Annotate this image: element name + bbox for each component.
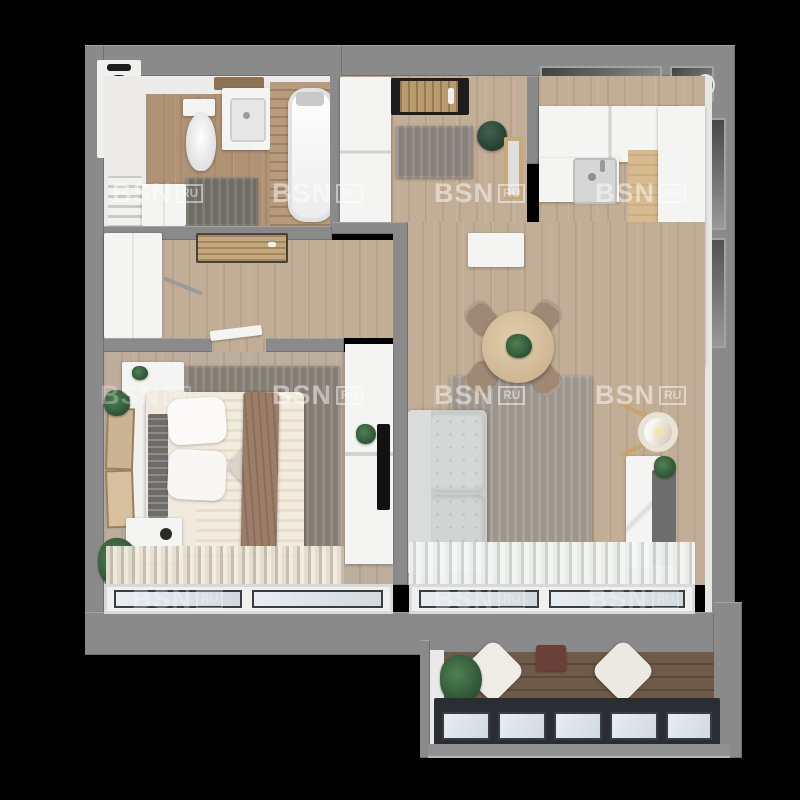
bed-pillow-2	[167, 449, 228, 502]
bath-faucet	[296, 92, 324, 106]
bedroom-doorway	[212, 338, 266, 352]
bedroom-tv	[377, 424, 390, 510]
right-wall-innerface	[705, 76, 712, 612]
bedroom-window-pane-1	[114, 590, 242, 608]
sofa-cushion-1	[431, 415, 485, 492]
kitchen-sink-drain	[588, 173, 596, 181]
bathtub	[288, 88, 334, 222]
table-plant	[506, 334, 532, 358]
bathroom-door-open	[196, 233, 288, 263]
toilet-bowl	[186, 113, 216, 171]
kitchen-sink	[573, 158, 617, 204]
bedroom-plant-small	[104, 390, 130, 416]
balcony-glass-5	[666, 712, 712, 740]
living-curtains	[409, 542, 695, 588]
lamp-bulb	[654, 428, 662, 436]
entrance-door-handle	[448, 88, 454, 104]
balcony-sill	[428, 744, 730, 758]
hall-rug	[396, 126, 473, 178]
balcony-glass-4	[610, 712, 658, 740]
bathroom-door-handle	[268, 242, 276, 247]
balcony-glass-3	[554, 712, 602, 740]
kitchen-faucet	[600, 160, 605, 172]
living-window-pane-2	[549, 590, 685, 608]
laundry-cabinet	[142, 184, 186, 226]
hall-mirror	[504, 137, 523, 199]
bed-throw-blanket	[241, 392, 280, 555]
balcony-glass-2	[498, 712, 546, 740]
nightstand-top	[122, 362, 184, 396]
balcony-glass-1	[442, 712, 490, 740]
towel-radiator	[108, 176, 142, 228]
nightstand-decor	[160, 528, 172, 540]
corridor-wardrobe	[104, 233, 162, 338]
cabinet-plant	[654, 456, 676, 478]
sink-drain	[243, 112, 250, 119]
balcony-table	[536, 645, 566, 671]
wall-bedroom-living	[393, 222, 408, 585]
hall-wardrobe	[340, 77, 391, 227]
radiator-bar-top	[107, 64, 131, 71]
picture-frame-1	[105, 408, 135, 471]
wardrobe-plant	[356, 424, 376, 444]
green-pouf	[477, 121, 507, 151]
bed-headboard-slats	[148, 414, 168, 518]
nightstand-plant	[132, 366, 148, 380]
vanity-sink	[230, 98, 266, 142]
balcony-plant	[440, 655, 482, 703]
bedroom-window-pane-2	[252, 590, 383, 608]
wall-hall-kitchen	[527, 76, 539, 164]
sideboard	[468, 233, 524, 267]
living-window-pane-1	[419, 590, 539, 608]
bath-mat	[186, 178, 258, 226]
apartment-floorplan: BSNRU BSNRU BSNRU BSNRU BSNRU BSNRU BSNR…	[0, 0, 800, 800]
balcony-wall-left-outer	[420, 640, 430, 758]
bed-pillow-1	[166, 396, 227, 446]
